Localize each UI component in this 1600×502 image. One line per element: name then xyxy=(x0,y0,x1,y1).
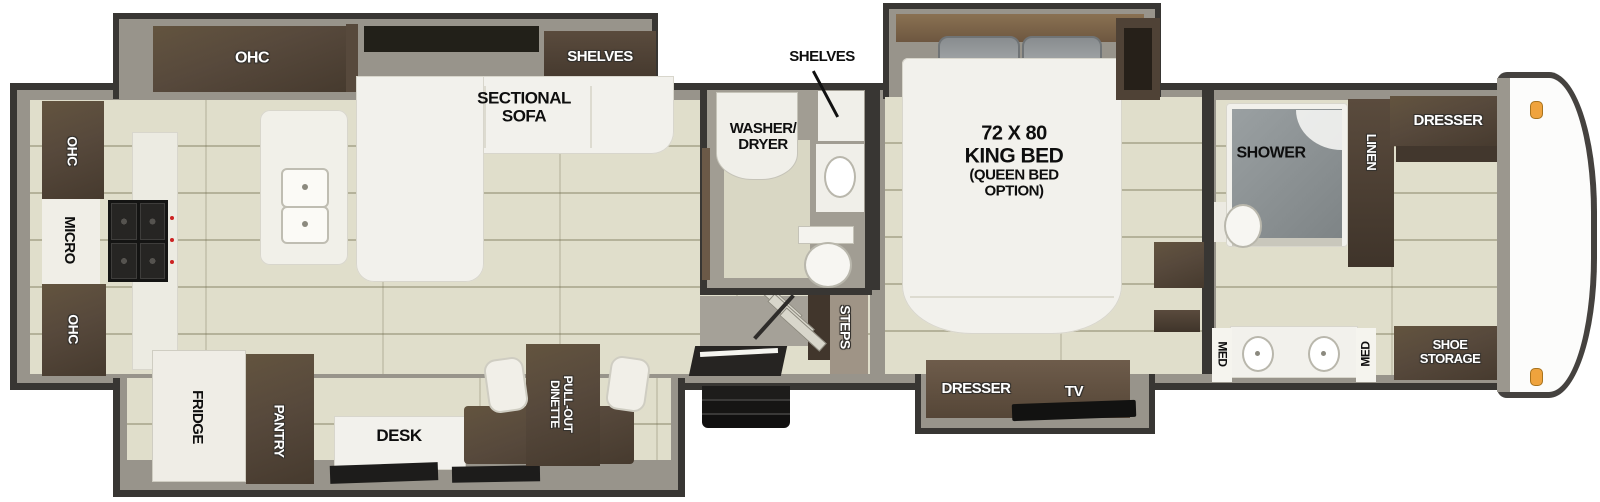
fridge-label: FRIDGE xyxy=(189,390,205,444)
desk-label: DESK xyxy=(376,427,421,445)
kitchen-sink-icon xyxy=(281,206,329,244)
marker-light-icon xyxy=(1530,101,1543,119)
linen-cabinet xyxy=(1348,99,1394,267)
slide-window xyxy=(364,26,539,52)
toilet-icon xyxy=(804,242,852,288)
linen-label: LINEN xyxy=(1364,134,1378,171)
med-right-label: MED xyxy=(1360,341,1373,366)
bedroom-wardrobe-inner xyxy=(1124,28,1152,90)
bedroom-dresser-label: DRESSER xyxy=(941,381,1010,397)
desk-chair-mat xyxy=(330,462,439,484)
bedroom-nightstand xyxy=(1154,242,1204,288)
burner-icon xyxy=(111,243,137,280)
burner-icon xyxy=(111,203,137,240)
dinette-chair xyxy=(482,355,529,414)
dinette-label: PULL-OUTDINETTE xyxy=(548,376,574,433)
half-bath-sink-icon xyxy=(824,156,856,198)
floorplan-canvas: OHC SHELVES SECTIONALSOFA SHELVES WASHER… xyxy=(0,0,1600,502)
dinette-chair xyxy=(604,354,651,413)
stove-knob-icon xyxy=(170,216,174,220)
marker-light-icon xyxy=(1530,368,1543,386)
bathroom-dresser-label: DRESSER xyxy=(1413,113,1482,129)
desk-chair-mat xyxy=(452,465,540,483)
half-bath-shelf xyxy=(818,91,864,141)
stove-cooktop xyxy=(108,200,168,282)
shelves-bath-label: SHELVES xyxy=(789,49,854,65)
bath-toilet-icon xyxy=(1224,204,1262,248)
stove-knob-icon xyxy=(170,238,174,242)
bath-sink-icon xyxy=(1242,336,1274,372)
pantry-label: PANTRY xyxy=(271,405,286,458)
kitchen-sink-icon xyxy=(281,168,329,208)
burner-icon xyxy=(140,243,166,280)
burner-icon xyxy=(140,203,166,240)
entry-fold-steps xyxy=(702,386,790,428)
ohc-lower-label: OHC xyxy=(65,314,80,344)
washer-dryer-label: WASHER/DRYER xyxy=(730,121,797,153)
shelves-sofa-label: SHELVES xyxy=(567,49,632,65)
ohc-upper-label: OHC xyxy=(64,136,79,166)
bath-sink-icon xyxy=(1308,336,1340,372)
tv-label: TV xyxy=(1065,384,1083,400)
stove-knob-icon xyxy=(170,260,174,264)
front-cap-inner-band xyxy=(1497,78,1510,392)
half-bath-pocket-door xyxy=(702,148,710,280)
front-cap xyxy=(1497,72,1597,398)
bed-headboard xyxy=(896,14,1144,42)
shoe-storage-label: SHOESTORAGE xyxy=(1420,338,1481,366)
ohc-slide-label: OHC xyxy=(235,49,269,66)
shower-label: SHOWER xyxy=(1237,144,1306,161)
steps-label: STEPS xyxy=(837,305,852,348)
micro-label: MICRO xyxy=(61,216,77,264)
bathroom-dresser-face xyxy=(1396,146,1506,162)
bedroom-shelf xyxy=(1154,310,1200,332)
king-bed-label: 72 X 80 KING BED (QUEEN BED OPTION) xyxy=(965,124,1064,201)
med-left-label: MED xyxy=(1216,341,1229,366)
sectional-sofa-chaise xyxy=(356,76,484,282)
sectional-sofa-label: SECTIONALSOFA xyxy=(477,90,571,127)
